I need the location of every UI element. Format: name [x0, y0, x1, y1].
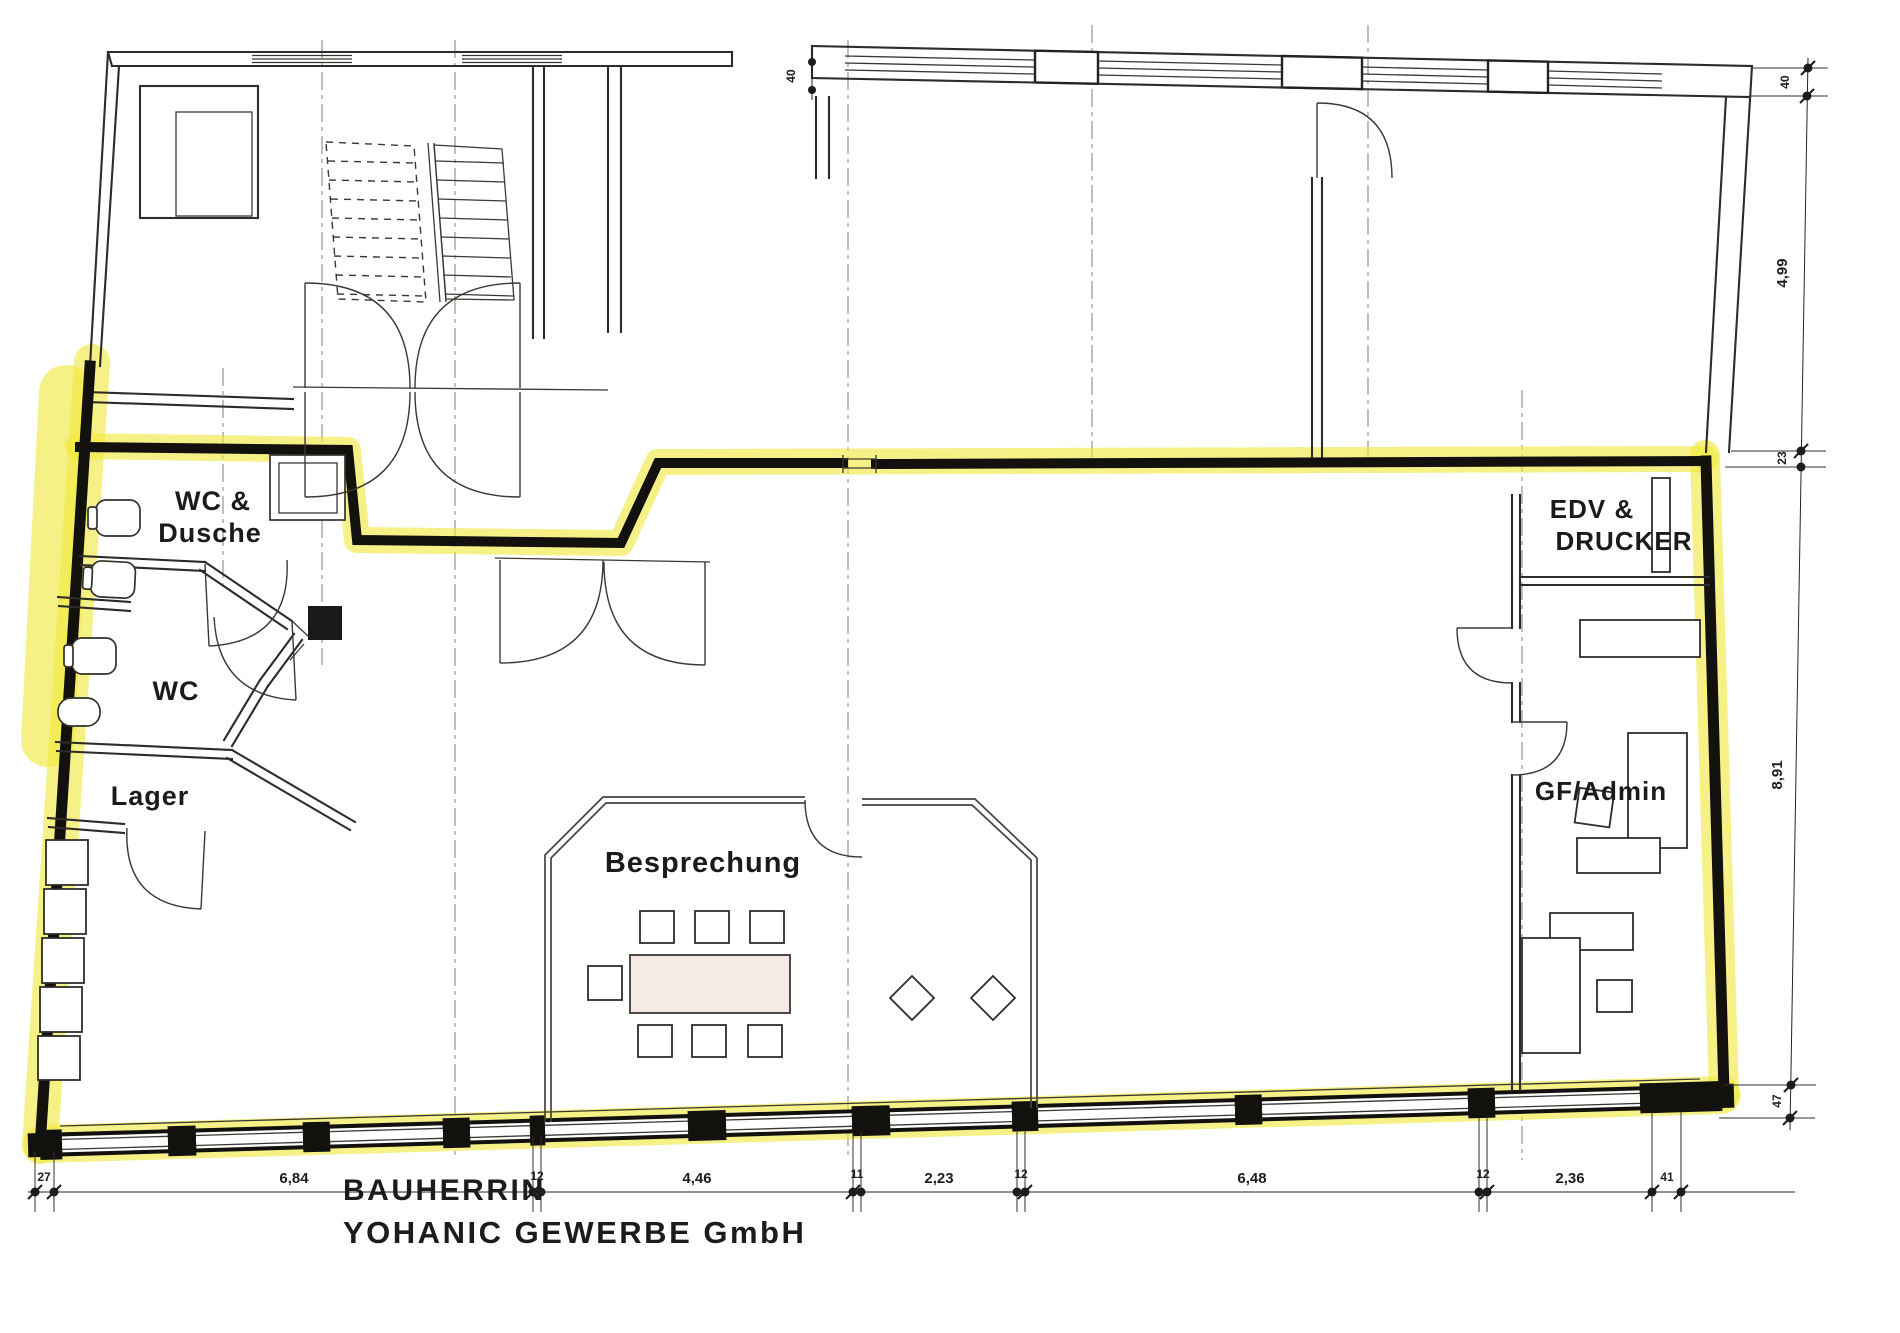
- dim-right-4: 47: [1770, 1094, 1784, 1108]
- desk: [1577, 838, 1660, 873]
- desk: [1580, 620, 1700, 657]
- chair: [695, 911, 729, 943]
- project-title-line1: BAUHERRIN: [343, 1174, 546, 1207]
- chair: [748, 1025, 782, 1057]
- dim-bottom-1: 6,84: [279, 1170, 309, 1187]
- dim-bottom-0: 27: [37, 1170, 51, 1184]
- chair: [750, 911, 784, 943]
- meeting-room-enclosure: [545, 797, 1037, 1122]
- extension-lines-right: [1719, 68, 1828, 1118]
- bottom-wall-windows: [40, 1079, 1722, 1149]
- title-block: BAUHERRIN YOHANIC GEWERBE GmbH: [343, 1174, 806, 1250]
- dim-bottom-5: 2,23: [924, 1170, 953, 1187]
- sink: [58, 698, 100, 726]
- dimension-chain-right: 40 4,99 23 8,91 47: [1719, 58, 1828, 1130]
- room-label-wc-dusche-line2: Dusche: [158, 518, 262, 548]
- dim-bottom-8: 12: [1476, 1167, 1490, 1181]
- room-label-lager: Lager: [111, 781, 190, 811]
- room-label-gf-admin: GF/Admin: [1535, 776, 1667, 806]
- meeting-table: [630, 955, 790, 1013]
- dim-right-1: 4,99: [1774, 258, 1791, 287]
- window-pillars: [1035, 51, 1548, 93]
- room-label-edv-line2: DRUCKER: [1556, 526, 1693, 556]
- storage-shelves: [38, 840, 88, 1080]
- chair: [638, 1025, 672, 1057]
- dim-right-0: 40: [1778, 75, 1792, 89]
- chair: [640, 911, 674, 943]
- room-label-wc: WC: [153, 676, 200, 706]
- room-label-wc-dusche-line1: WC &: [175, 486, 251, 516]
- dim-bottom-6: 12: [1014, 1167, 1028, 1181]
- desk: [1522, 938, 1580, 1053]
- column-diamond: [890, 976, 934, 1020]
- column: [308, 606, 342, 640]
- dim-bottom-7: 6,48: [1237, 1170, 1266, 1187]
- dim-right-2: 23: [1775, 451, 1789, 465]
- dimension-values-right: 40 4,99 23 8,91 47: [1769, 75, 1792, 1108]
- chair: [1597, 980, 1632, 1012]
- dim-bottom-9: 2,36: [1555, 1170, 1584, 1187]
- room-label-edv-line1: EDV &: [1550, 494, 1634, 524]
- dim-right-3: 8,91: [1769, 760, 1786, 789]
- room-label-bes: Besprechung: [605, 847, 801, 879]
- top-wall-windows: [252, 51, 1662, 93]
- structural-axes: [223, 25, 1522, 1160]
- column-diamond: [971, 976, 1015, 1020]
- floor-plan-canvas: WC & Dusche WC Lager Besprechung EDV & D…: [0, 0, 1900, 1333]
- dim-bottom-4: 11: [851, 1167, 864, 1181]
- shelf: [1652, 478, 1670, 572]
- chair: [692, 1025, 726, 1057]
- building-outline: [86, 46, 1752, 458]
- dim-bottom-3: 4,46: [682, 1170, 711, 1187]
- chair: [588, 966, 622, 1000]
- meeting-table-group: [588, 911, 790, 1057]
- staircase: [326, 142, 514, 302]
- project-title-line2: YOHANIC GEWERBE GmbH: [343, 1215, 806, 1250]
- dimension-values-bottom: 27 6,84 12 4,46 11 2,23 12 6,48 12 2,36 …: [37, 1167, 1674, 1187]
- floor-plan-page: WC & Dusche WC Lager Besprechung EDV & D…: [0, 0, 1900, 1333]
- dim-bottom-10: 41: [1660, 1170, 1674, 1184]
- dim-top-0: 40: [784, 69, 798, 83]
